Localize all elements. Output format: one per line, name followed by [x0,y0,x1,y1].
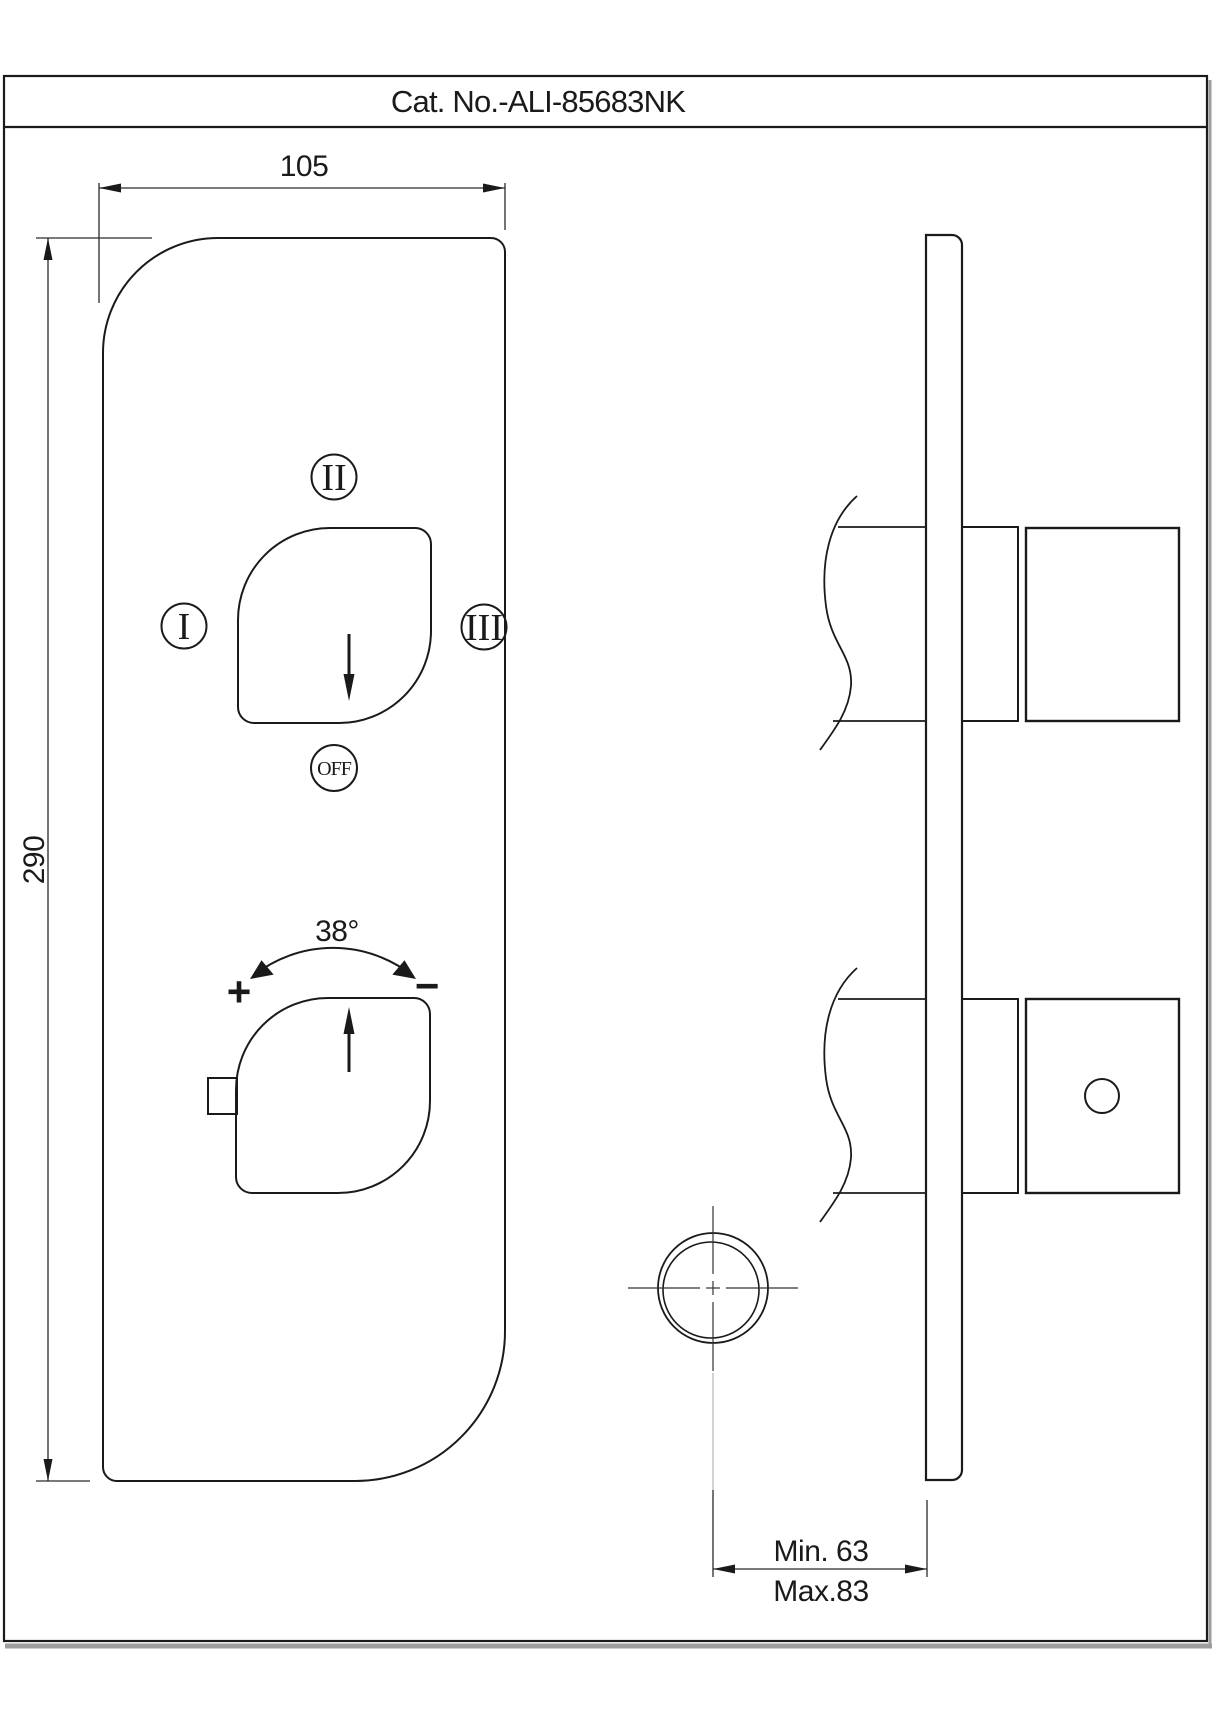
sheet-frame: Cat. No.-ALI-85683NK [4,76,1212,1646]
depth-min-label: Min. 63 [774,1535,869,1568]
position-label-III: III [465,607,503,649]
off-label: OFF [317,758,352,780]
catalog-number-title: Cat. No.-ALI-85683NK [391,84,686,119]
angle-label: 38° [315,915,359,948]
plus-label: + [227,968,252,1015]
drawing-page: Cat. No.-ALI-85683NK 105 290 II [0,0,1214,1719]
position-label-I: I [178,606,191,648]
minus-label: − [415,962,440,1009]
depth-max-label: Max.83 [773,1575,868,1608]
technical-drawing: Cat. No.-ALI-85683NK 105 290 II [0,0,1214,1719]
frame-border [4,76,1207,1641]
width-dimension-label: 105 [280,150,329,183]
position-label-II: II [321,457,346,499]
height-dimension-label: 290 [18,836,51,885]
